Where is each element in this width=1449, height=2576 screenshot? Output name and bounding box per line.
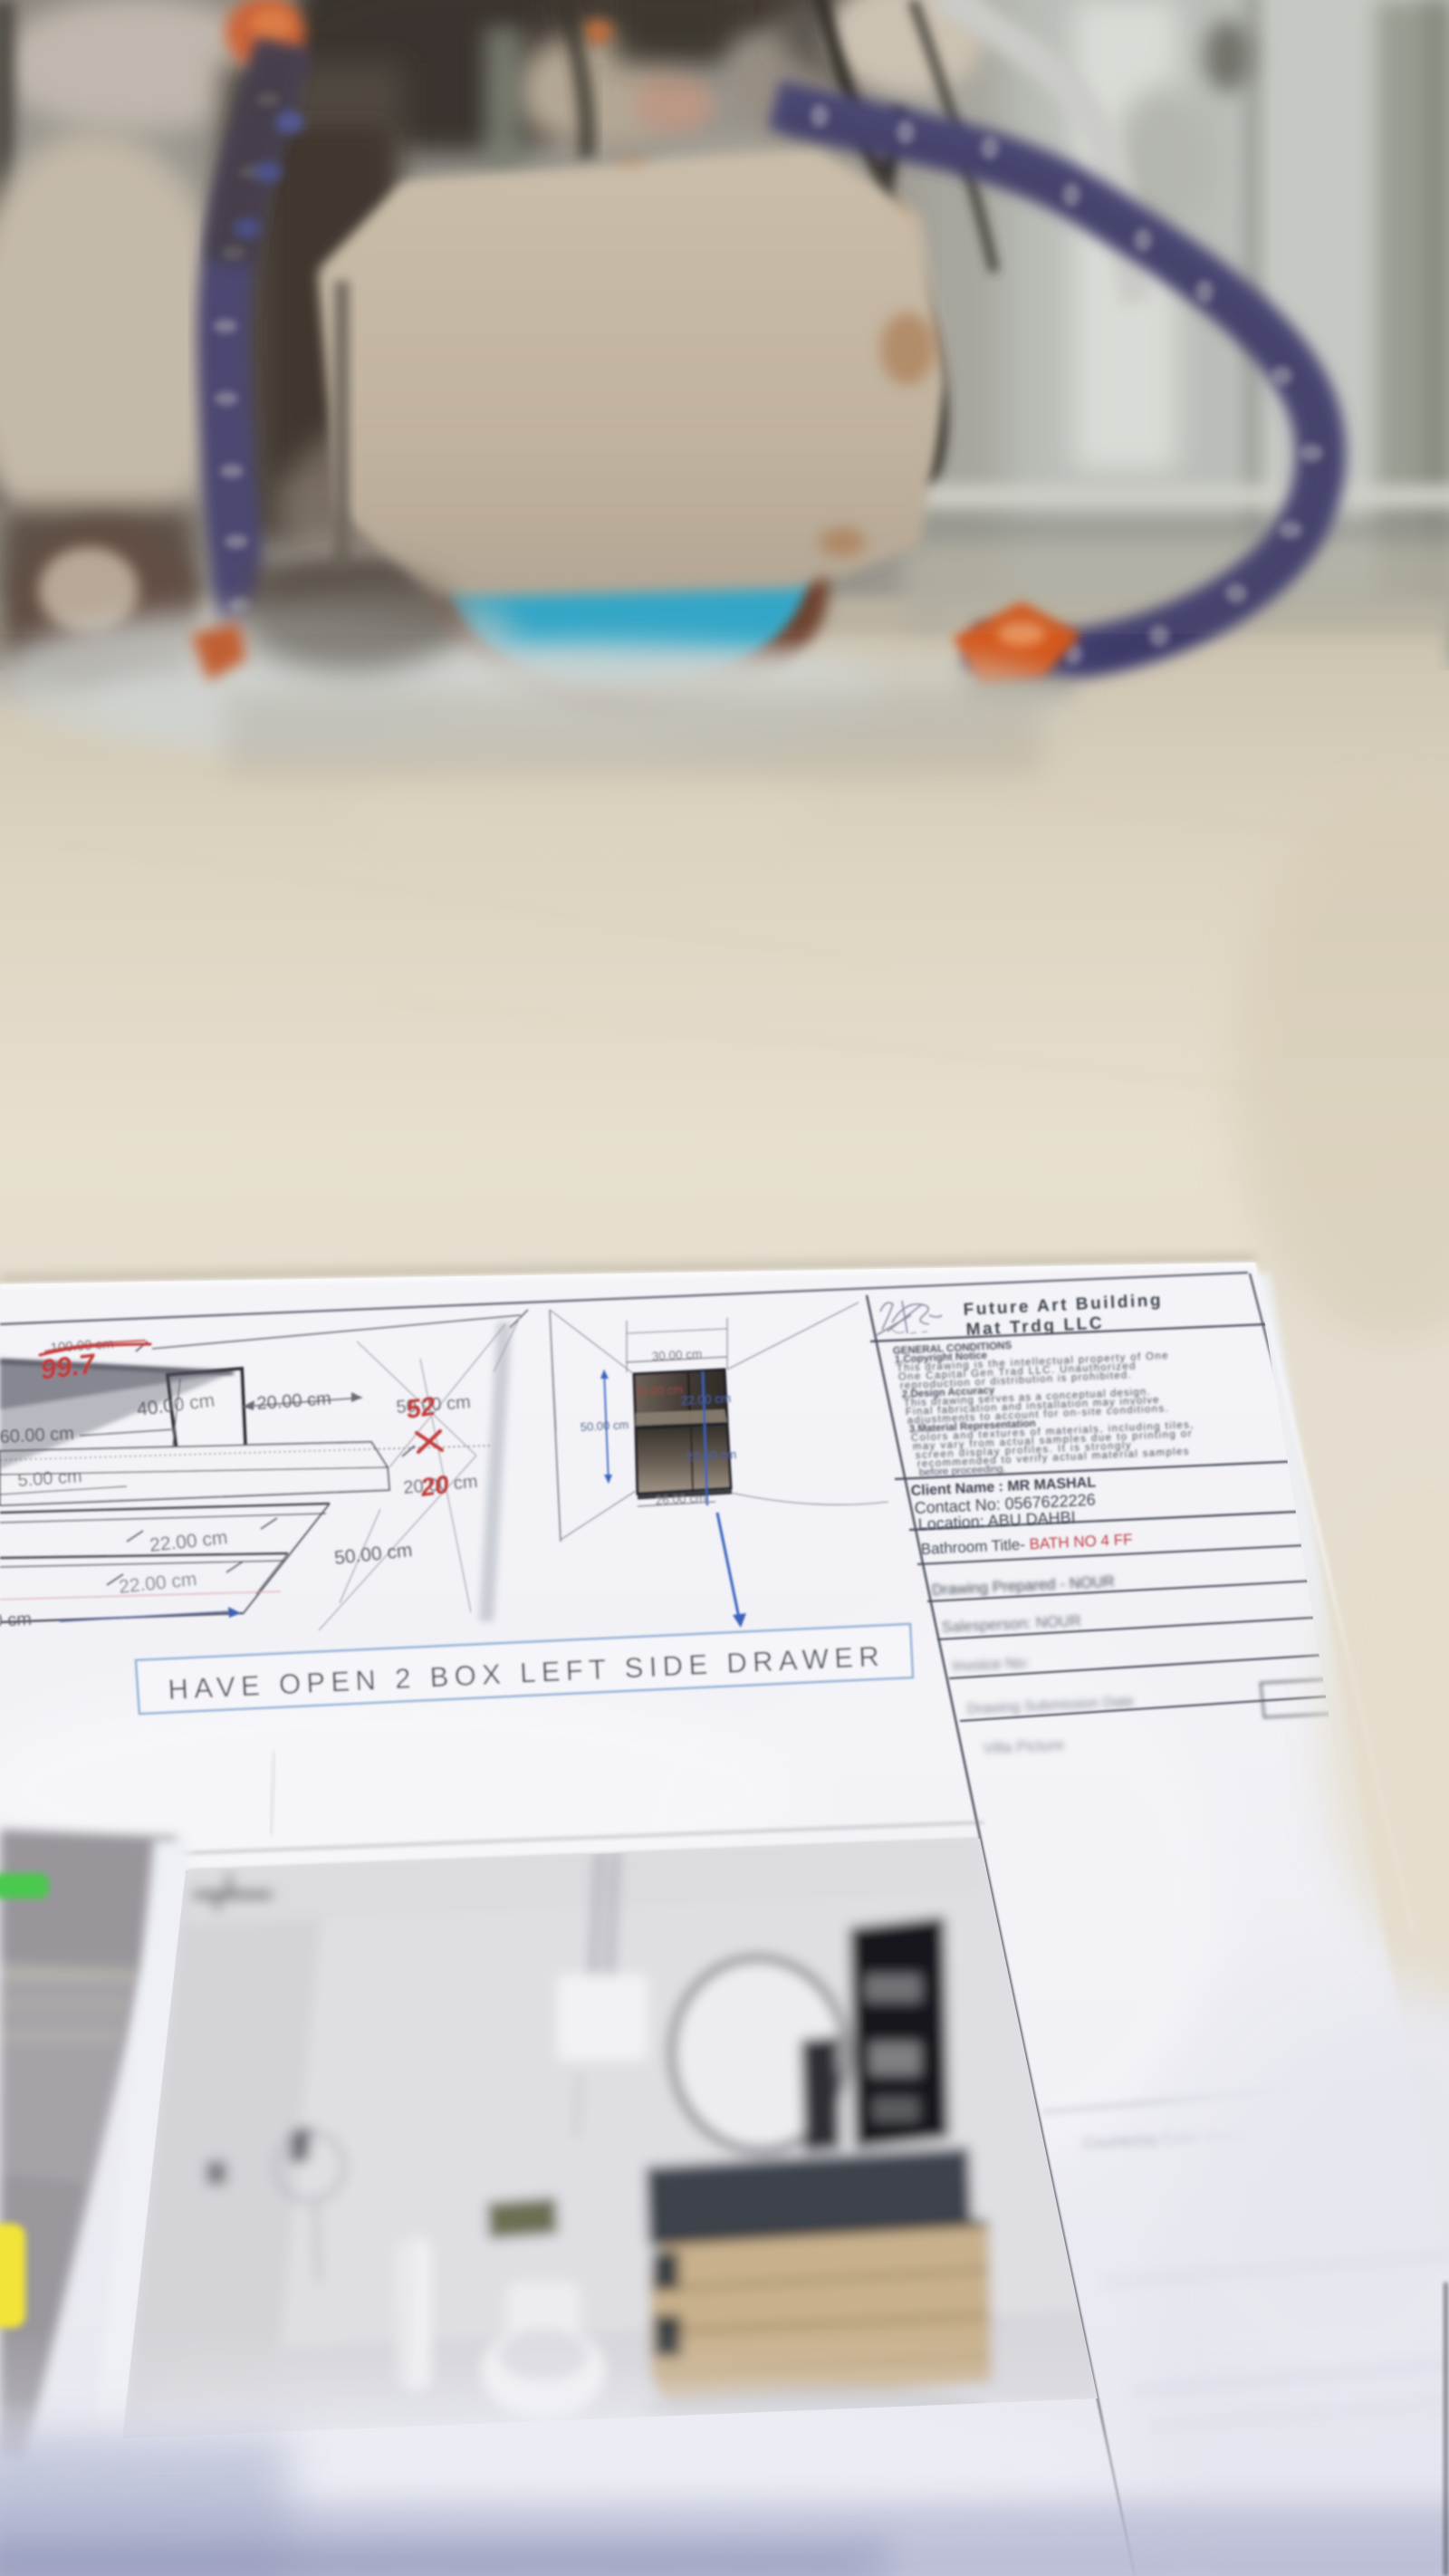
svg-text:0 cm: 0 cm (0, 1610, 33, 1631)
svg-text:50.00 cm: 50.00 cm (580, 1418, 629, 1434)
svg-text:52: 52 (405, 1392, 437, 1425)
svg-text:30.00 cm: 30.00 cm (651, 1347, 702, 1363)
svg-text:15.00 cm: 15.00 cm (634, 1382, 683, 1399)
svg-text:22.00 cm: 22.00 cm (686, 1447, 736, 1464)
svg-text:Invoice No:: Invoice No: (952, 1654, 1030, 1675)
svg-text:20: 20 (418, 1470, 452, 1502)
svg-text:22.00 cm: 22.00 cm (680, 1391, 731, 1408)
